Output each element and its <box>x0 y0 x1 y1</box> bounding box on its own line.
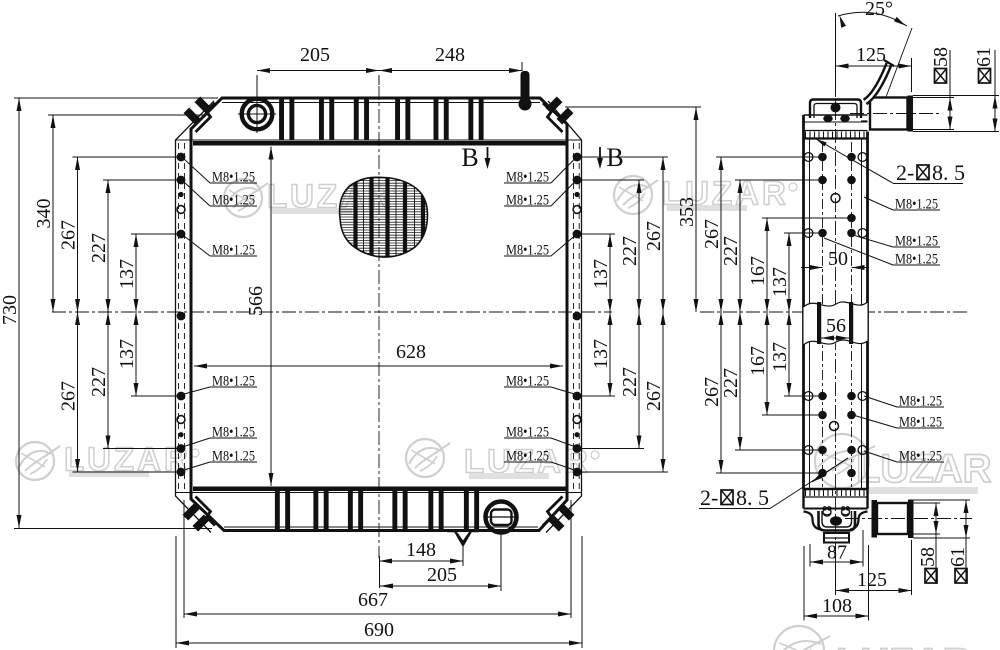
svg-text:227: 227 <box>619 367 641 397</box>
svg-text:M8•1.25: M8•1.25 <box>212 170 255 186</box>
svg-text:205: 205 <box>300 44 330 66</box>
svg-text:M8•1.25: M8•1.25 <box>895 252 938 268</box>
svg-text:227: 227 <box>88 367 110 397</box>
svg-text:137: 137 <box>590 259 612 289</box>
svg-text:2-: 2- <box>700 485 718 510</box>
svg-text:2-: 2- <box>896 160 914 185</box>
svg-text:667: 667 <box>358 589 388 611</box>
svg-text:8. 5: 8. 5 <box>932 160 965 185</box>
svg-text:B: B <box>461 143 478 172</box>
svg-text:58: 58 <box>917 547 939 567</box>
svg-text:M8•1.25: M8•1.25 <box>899 394 942 410</box>
svg-text:M8•1.25: M8•1.25 <box>895 234 938 250</box>
svg-text:137: 137 <box>590 339 612 369</box>
svg-text:M8•1.25: M8•1.25 <box>506 449 549 465</box>
svg-text:125: 125 <box>857 569 887 591</box>
svg-text:267: 267 <box>643 221 665 251</box>
svg-text:LUZAR: LUZAR <box>836 641 972 650</box>
svg-text:167: 167 <box>747 346 769 376</box>
svg-text:267: 267 <box>58 381 80 411</box>
svg-text:730: 730 <box>0 295 21 325</box>
svg-text:227: 227 <box>720 368 742 398</box>
svg-text:167: 167 <box>747 256 769 286</box>
svg-text:61: 61 <box>973 47 995 67</box>
svg-text:248: 248 <box>435 44 465 66</box>
svg-text:M8•1.25: M8•1.25 <box>506 425 549 441</box>
svg-text:690: 690 <box>364 619 394 641</box>
svg-text:M8•1.25: M8•1.25 <box>212 449 255 465</box>
svg-text:M8•1.25: M8•1.25 <box>506 243 549 259</box>
svg-text:566: 566 <box>245 286 267 316</box>
svg-text:205: 205 <box>427 564 457 586</box>
svg-text:M8•1.25: M8•1.25 <box>506 193 549 209</box>
svg-text:267: 267 <box>643 381 665 411</box>
svg-text:M8•1.25: M8•1.25 <box>212 425 255 441</box>
svg-text:353: 353 <box>676 197 698 227</box>
svg-text:50: 50 <box>828 248 848 270</box>
svg-text:56: 56 <box>826 315 846 337</box>
svg-text:58: 58 <box>930 47 952 67</box>
svg-text:M8•1.25: M8•1.25 <box>895 197 938 213</box>
svg-text:87: 87 <box>827 542 847 564</box>
svg-text:340: 340 <box>33 199 55 229</box>
svg-text:267: 267 <box>58 220 80 250</box>
svg-text:M8•1.25: M8•1.25 <box>899 415 942 431</box>
svg-text:8. 5: 8. 5 <box>736 485 769 510</box>
svg-text:M8•1.25: M8•1.25 <box>506 374 549 390</box>
svg-text:628: 628 <box>396 341 426 363</box>
svg-text:227: 227 <box>720 236 742 266</box>
svg-text:M8•1.25: M8•1.25 <box>212 243 255 259</box>
svg-text:M8•1.25: M8•1.25 <box>899 449 942 465</box>
svg-text:125: 125 <box>856 44 886 66</box>
svg-text:25°: 25° <box>865 0 893 20</box>
svg-text:61: 61 <box>947 547 969 567</box>
svg-text:227: 227 <box>88 233 110 263</box>
svg-text:137: 137 <box>116 339 138 369</box>
svg-text:M8•1.25: M8•1.25 <box>506 170 549 186</box>
svg-text:M8•1.25: M8•1.25 <box>212 193 255 209</box>
svg-text:227: 227 <box>619 236 641 266</box>
svg-text:M8•1.25: M8•1.25 <box>212 374 255 390</box>
svg-text:137: 137 <box>116 259 138 289</box>
svg-text:108: 108 <box>822 595 852 617</box>
svg-text:148: 148 <box>406 539 436 561</box>
svg-text:137: 137 <box>769 267 791 297</box>
svg-text:137: 137 <box>769 342 791 372</box>
